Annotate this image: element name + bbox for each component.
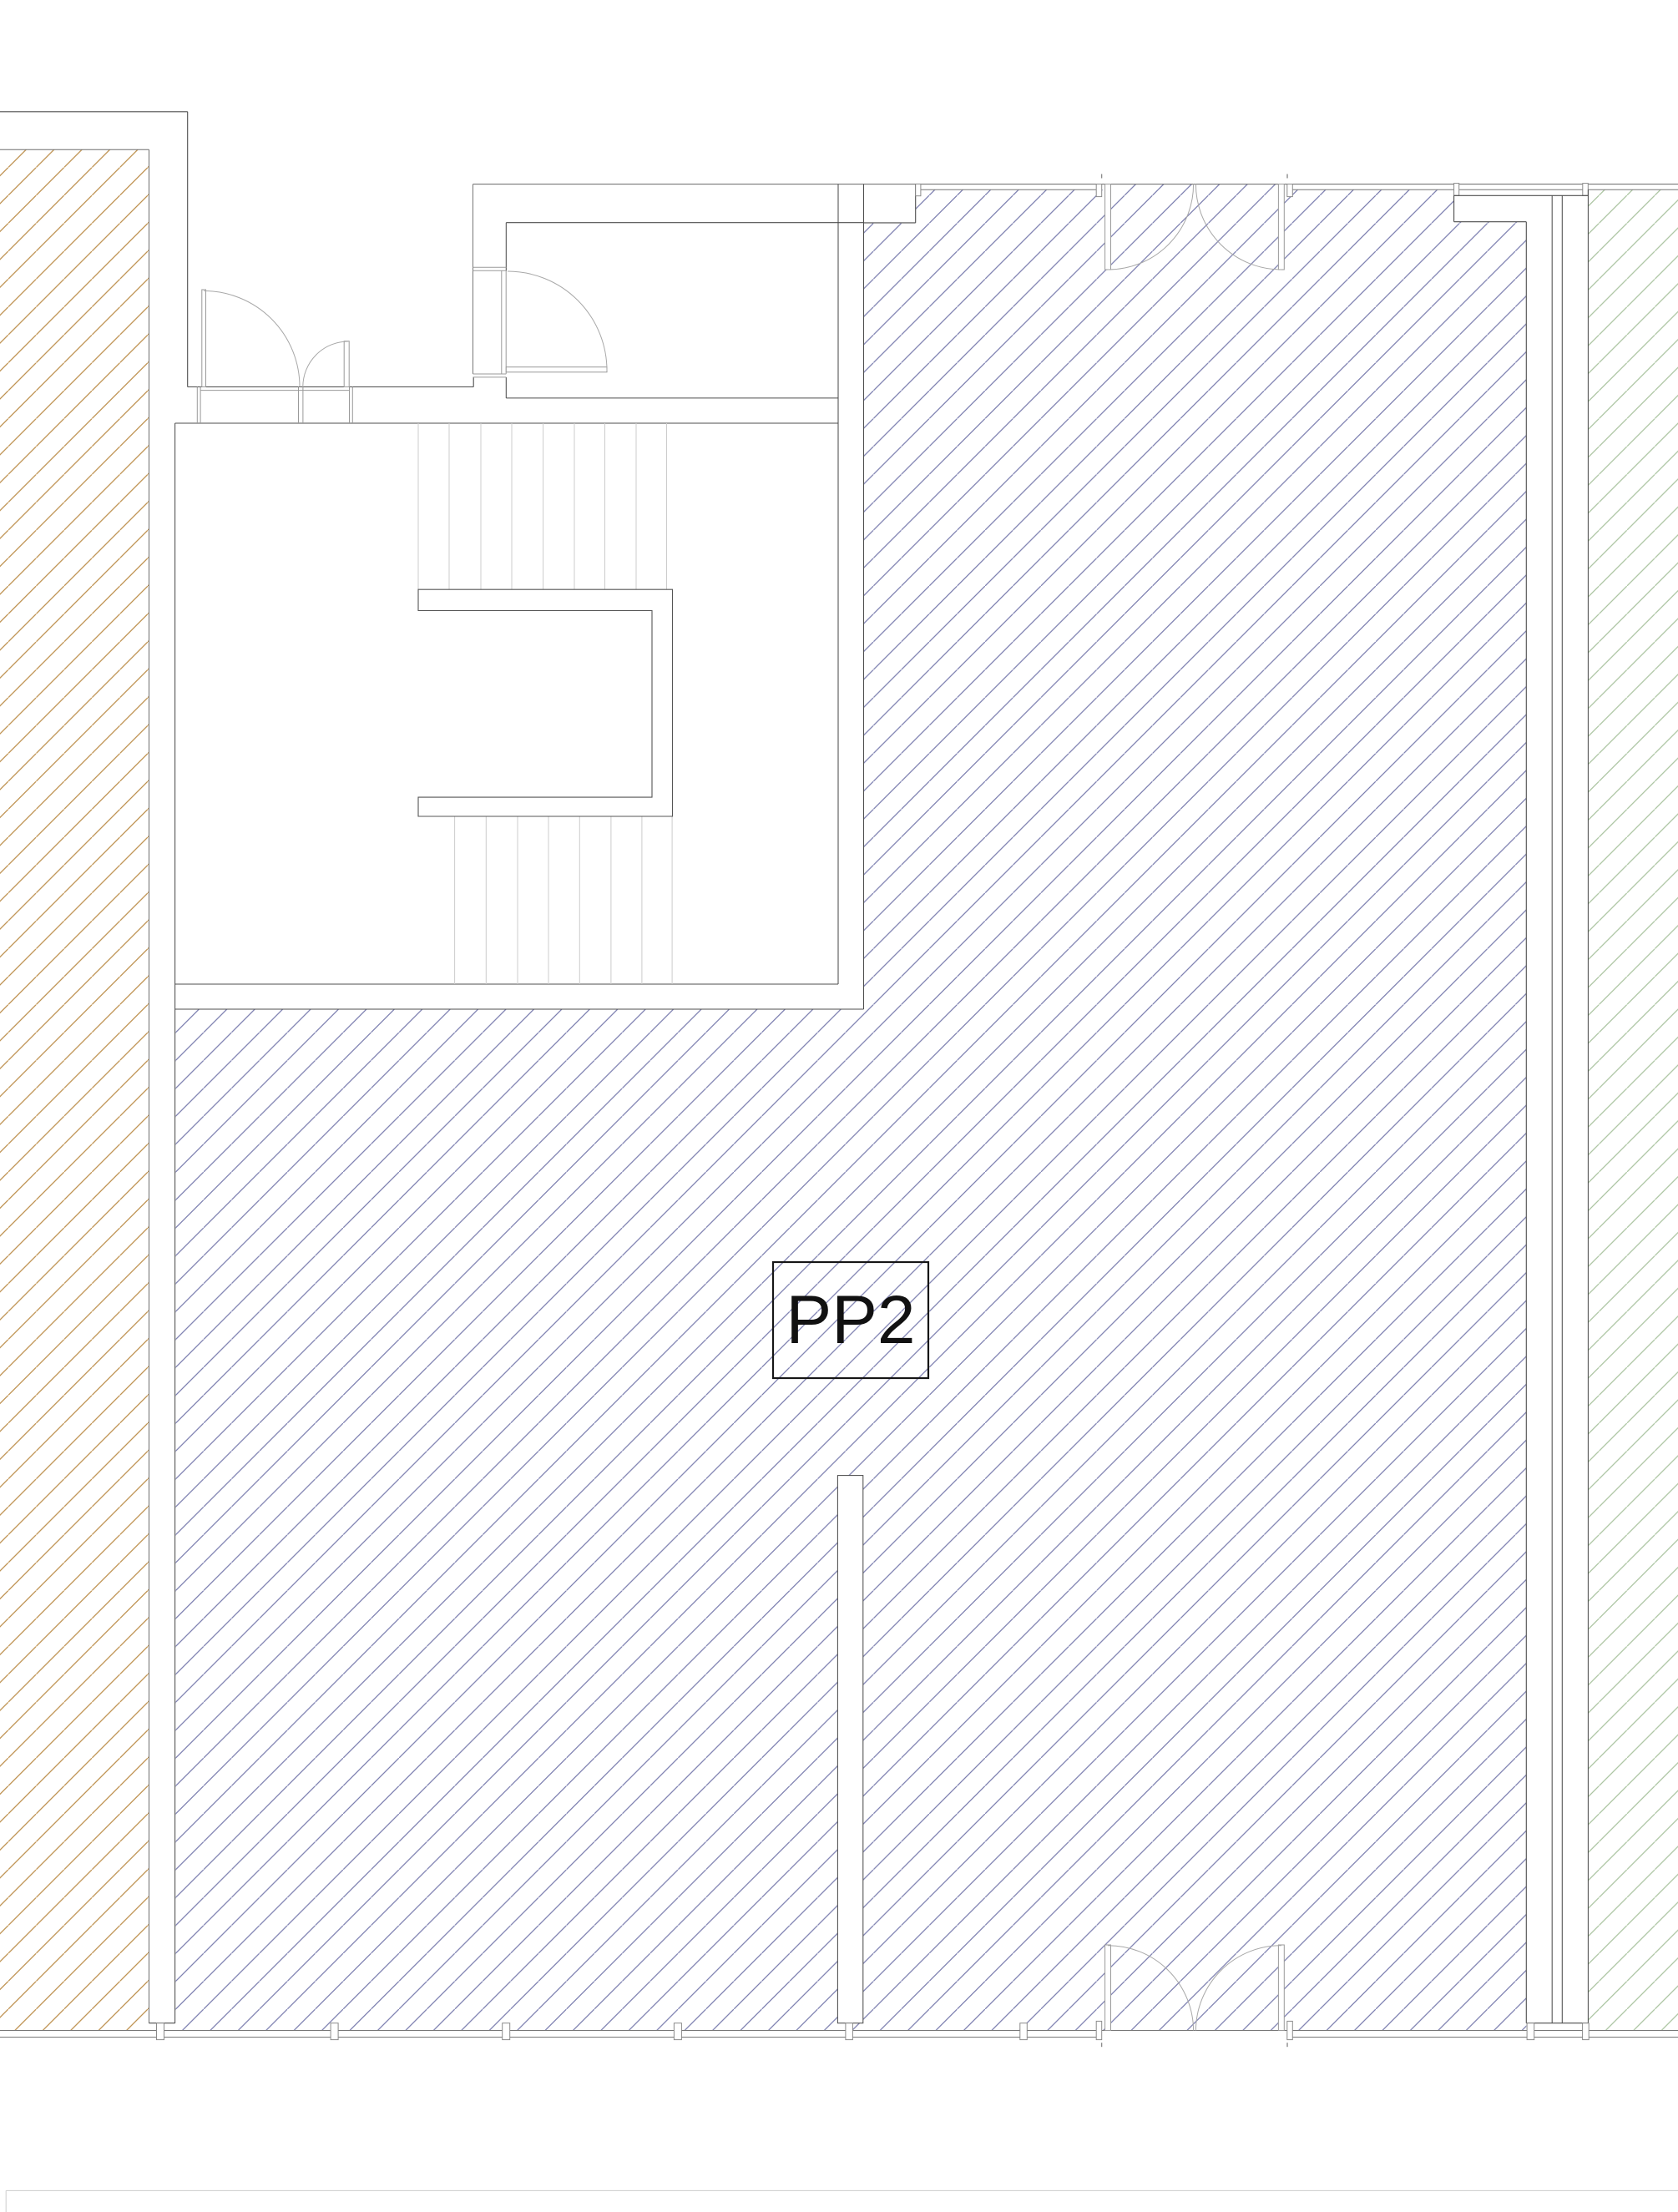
svg-text:PP2: PP2 — [786, 1282, 916, 1358]
